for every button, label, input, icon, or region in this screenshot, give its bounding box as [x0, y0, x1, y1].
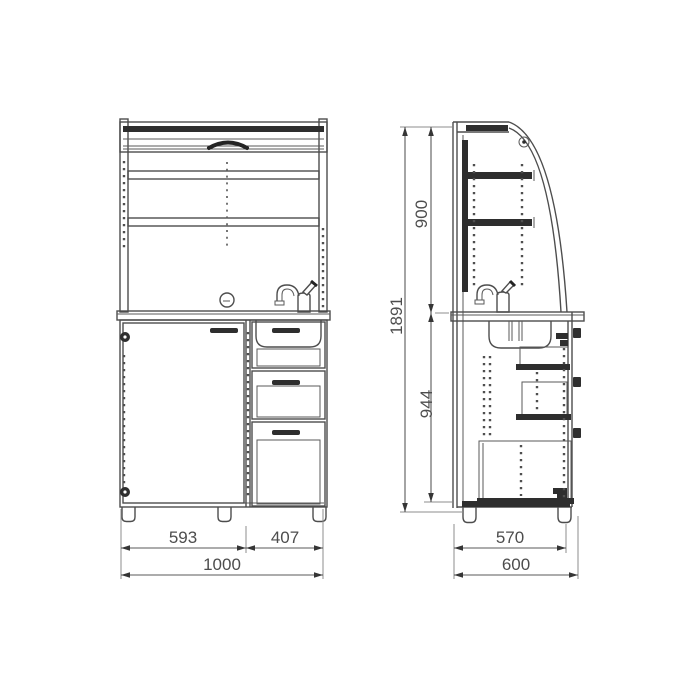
side-drawer-box-2	[516, 382, 571, 420]
dim-label-upper-height: 900	[412, 200, 431, 228]
cabinet-technical-drawing: 593 407 1000 570 600 1891 900 944	[0, 0, 700, 700]
dim-label-total-height: 1891	[387, 297, 406, 335]
side-faucet-icon	[475, 281, 515, 312]
front-drawer-1	[252, 320, 325, 368]
door-handle	[210, 328, 238, 333]
drawer-1-handle	[272, 328, 300, 333]
dimension-annotations: 593 407 1000 570 600 1891 900 944	[121, 127, 578, 579]
front-knob	[220, 293, 234, 307]
front-view	[117, 119, 330, 522]
side-feet	[463, 507, 571, 523]
side-shelves	[462, 140, 534, 292]
shelf-standard	[462, 140, 468, 292]
extension-lines	[121, 127, 578, 579]
front-shelf-lower	[128, 218, 319, 226]
side-sink-bowl	[489, 321, 551, 348]
side-drawer-box-1	[516, 347, 570, 370]
technical-drawing-page: 593 407 1000 570 600 1891 900 944	[0, 0, 700, 700]
side-hinge-top	[556, 333, 568, 346]
side-worktop	[451, 312, 584, 321]
side-base-cabinet	[457, 312, 581, 507]
front-divider	[246, 320, 250, 507]
side-handle-2	[573, 377, 581, 387]
front-sink-bowl	[256, 320, 321, 347]
dim-label-drawer-width: 407	[271, 528, 299, 547]
front-door	[120, 323, 244, 503]
dim-label-total-depth: 600	[502, 555, 530, 574]
side-base-plinth	[462, 501, 570, 507]
dimension-lines	[121, 127, 578, 575]
dim-label-door-width: 593	[169, 528, 197, 547]
front-shutter-box	[120, 122, 327, 152]
side-view	[451, 122, 584, 523]
front-faucet-icon	[275, 281, 317, 312]
front-feet	[122, 507, 326, 522]
front-hutch-posts	[120, 119, 327, 312]
dimension-arrows	[121, 127, 578, 578]
drawer-2-handle	[272, 380, 300, 385]
side-handle-1	[573, 328, 581, 338]
door-hinge-top	[120, 332, 130, 342]
front-shelf-upper	[128, 171, 319, 179]
dim-label-body-depth: 570	[496, 528, 524, 547]
dim-label-total-width: 1000	[203, 555, 241, 574]
drawer-3-handle	[272, 430, 300, 435]
dim-label-base-height: 944	[417, 390, 436, 418]
front-base-cabinet	[120, 320, 327, 507]
side-handle-3	[573, 428, 581, 438]
door-hinge-bottom	[120, 487, 130, 497]
shutter-handle-icon	[209, 143, 247, 149]
front-drawer-2	[252, 371, 325, 419]
front-drawer-3	[252, 422, 325, 506]
